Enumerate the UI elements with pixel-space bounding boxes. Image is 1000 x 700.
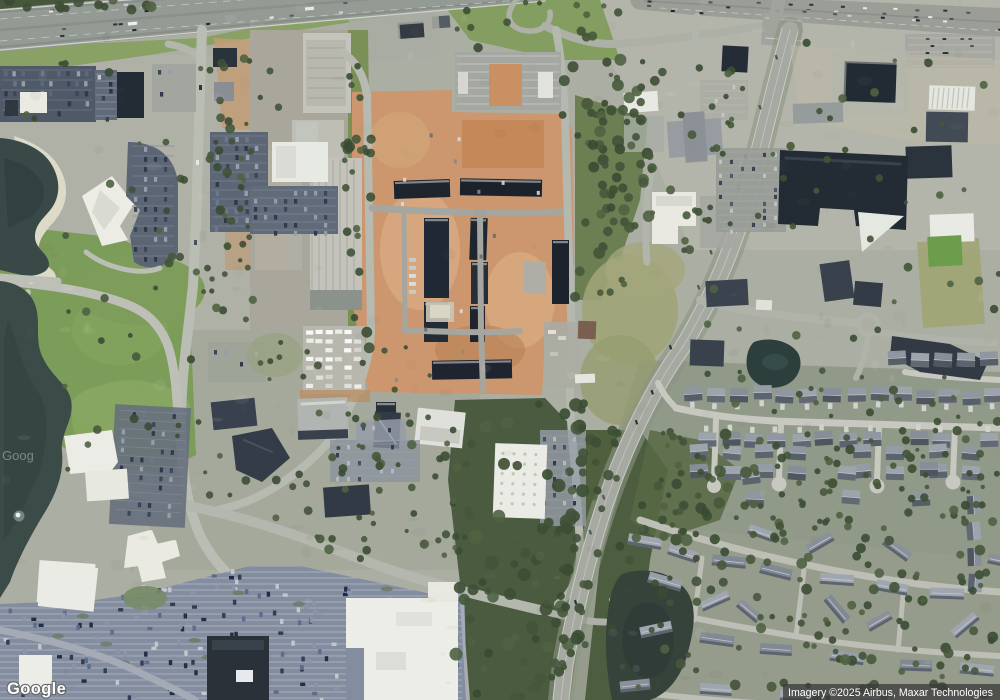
svg-text:25 Goog: 25 Goog bbox=[0, 448, 34, 463]
svg-text:Imagery ©2025 Airbus, Maxar Te: Imagery ©2025 Airbus, Maxar Technologies bbox=[788, 687, 993, 699]
svg-text:Google: Google bbox=[7, 680, 66, 698]
